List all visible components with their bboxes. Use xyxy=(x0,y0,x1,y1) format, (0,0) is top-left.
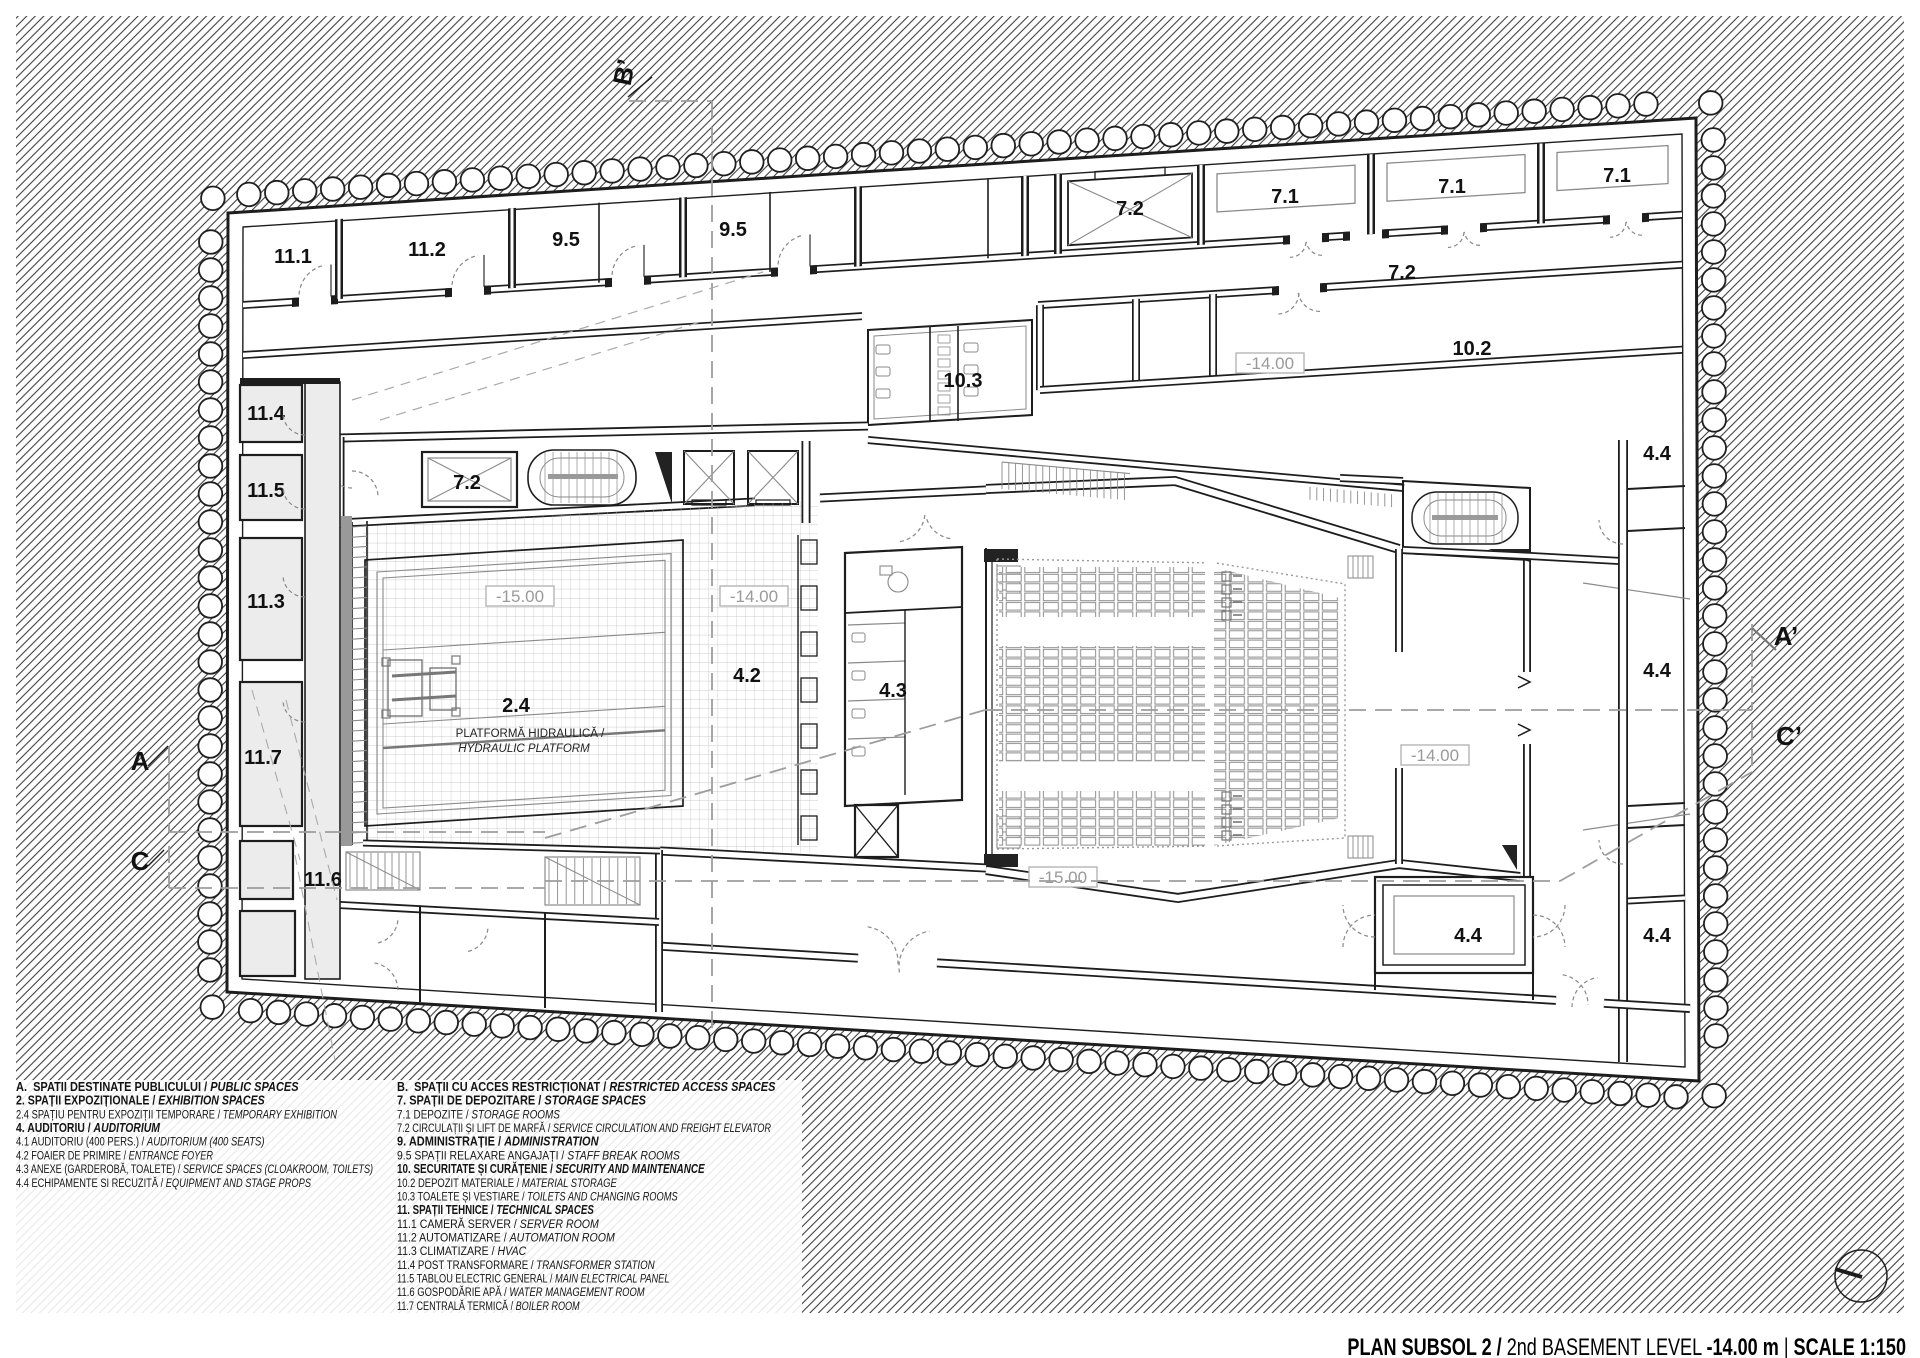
svg-text:C’: C’ xyxy=(1776,721,1802,751)
svg-text:4.2: 4.2 xyxy=(733,665,761,687)
svg-text:4.2 FOAIER DE PRIMIRE / ENTRAN: 4.2 FOAIER DE PRIMIRE / ENTRANCE FOYER xyxy=(16,1149,213,1162)
svg-text:7.2 CIRCULAȚII ȘI LIFT DE MARF: 7.2 CIRCULAȚII ȘI LIFT DE MARFĂ / SERVIC… xyxy=(397,1121,771,1136)
svg-text:7.1 DEPOZITE / STORAGE ROOMS: 7.1 DEPOZITE / STORAGE ROOMS xyxy=(397,1109,560,1122)
svg-text:4.3: 4.3 xyxy=(879,680,907,702)
svg-text:10.2 DEPOZIT MATERIALE / MATER: 10.2 DEPOZIT MATERIALE / MATERIAL STORAG… xyxy=(397,1177,617,1190)
svg-text:4.4 ECHIPAMENTE SI RECUZITĂ /: 4.4 ECHIPAMENTE SI RECUZITĂ / EQUIPMENT … xyxy=(16,1176,312,1191)
svg-text:11.3: 11.3 xyxy=(247,591,285,613)
svg-text:11.6 GOSPODĂRIE APĂ / WATER MA: 11.6 GOSPODĂRIE APĂ / WATER MANAGEMENT R… xyxy=(397,1285,645,1299)
svg-text:9.5: 9.5 xyxy=(552,229,580,251)
svg-text:2.4: 2.4 xyxy=(502,695,531,717)
svg-text:4.4: 4.4 xyxy=(1643,660,1672,682)
svg-text:-14.00: -14.00 xyxy=(1246,354,1294,373)
svg-text:11.2: 11.2 xyxy=(408,239,446,261)
svg-text:10. SECURITATE ȘI CURĂȚENIE /: 10. SECURITATE ȘI CURĂȚENIE / SECURITY A… xyxy=(397,1162,705,1176)
svg-text:PLAN SUBSOL 2 / 2nd BASEMENT L: PLAN SUBSOL 2 / 2nd BASEMENT LEVEL -14.0… xyxy=(1347,1334,1906,1358)
svg-text:9. ADMINISTRAȚIE / ADMINISTRAT: 9. ADMINISTRAȚIE / ADMINISTRATION xyxy=(397,1135,599,1149)
svg-text:7. SPAȚII DE DEPOZITARE / STOR: 7. SPAȚII DE DEPOZITARE / STORAGE SPACES xyxy=(397,1094,646,1108)
svg-text:4.4: 4.4 xyxy=(1643,443,1672,465)
svg-text:11.2 AUTOMATIZARE / AUTOMATION: 11.2 AUTOMATIZARE / AUTOMATION ROOM xyxy=(397,1232,615,1245)
svg-text:7.2: 7.2 xyxy=(453,472,481,494)
svg-text:7.1: 7.1 xyxy=(1603,165,1631,187)
svg-text:PLATFORMĂ HIDRAULICĂ /: PLATFORMĂ HIDRAULICĂ / xyxy=(456,727,605,740)
svg-text:11.4 POST TRANSFORMARE / TRANS: 11.4 POST TRANSFORMARE / TRANSFORMER STA… xyxy=(397,1259,655,1272)
svg-text:-15.00: -15.00 xyxy=(1039,868,1087,887)
svg-text:9.5: 9.5 xyxy=(719,219,747,241)
svg-text:10.3 TOALETE ȘI VESTIARE / TOI: 10.3 TOALETE ȘI VESTIARE / TOILETS AND C… xyxy=(397,1190,678,1203)
svg-text:A. SPATII DESTINATE PUBLICULU: A. SPATII DESTINATE PUBLICULUI / PUBLIC … xyxy=(16,1080,299,1094)
svg-text:A’: A’ xyxy=(1774,621,1799,651)
svg-text:4.4: 4.4 xyxy=(1454,925,1483,947)
svg-text:11.5 TABLOU ELECTRIC GENERAL /: 11.5 TABLOU ELECTRIC GENERAL / MAIN ELEC… xyxy=(397,1272,670,1285)
svg-text:A: A xyxy=(131,746,150,776)
svg-text:11.7: 11.7 xyxy=(244,747,282,769)
svg-text:-14.00: -14.00 xyxy=(730,587,778,606)
svg-text:7.2: 7.2 xyxy=(1388,262,1416,284)
svg-text:HYDRAULIC PLATFORM: HYDRAULIC PLATFORM xyxy=(458,743,590,755)
svg-text:4. AUDITORIU / AUDITORIUM: 4. AUDITORIU / AUDITORIUM xyxy=(16,1122,160,1135)
svg-text:11.1: 11.1 xyxy=(274,246,312,268)
svg-text:11.1 CAMERĂ SERVER / SERVER RO: 11.1 CAMERĂ SERVER / SERVER ROOM xyxy=(397,1217,599,1231)
svg-text:B. SPAȚII CU ACCES RESTRICȚIO: B. SPAȚII CU ACCES RESTRICȚIONAT / RESTR… xyxy=(397,1080,776,1094)
svg-text:10.2: 10.2 xyxy=(1453,338,1492,360)
svg-text:11.5: 11.5 xyxy=(247,480,285,502)
svg-text:-14.00: -14.00 xyxy=(1411,746,1459,765)
svg-text:4.4: 4.4 xyxy=(1643,925,1672,947)
svg-text:C: C xyxy=(131,846,150,876)
svg-text:7.2: 7.2 xyxy=(1116,198,1144,220)
svg-text:11. SPAȚII TEHNICE / TECHNICAL: 11. SPAȚII TEHNICE / TECHNICAL SPACES xyxy=(397,1204,594,1217)
svg-text:11.7 CENTRALĂ TERMICĂ / BOILER: 11.7 CENTRALĂ TERMICĂ / BOILER ROOM xyxy=(397,1299,580,1314)
svg-text:10.3: 10.3 xyxy=(944,370,983,392)
svg-text:2.4 SPAȚIU PENTRU EXPOZIȚII TE: 2.4 SPAȚIU PENTRU EXPOZIȚII TEMPORARE / … xyxy=(16,1108,337,1121)
svg-text:9.5 SPAȚII RELAXARE ANGAJAȚI /: 9.5 SPAȚII RELAXARE ANGAJAȚI / STAFF BRE… xyxy=(397,1150,680,1163)
svg-text:4.3 ANEXE (GARDEROBĂ, TOALETE): 4.3 ANEXE (GARDEROBĂ, TOALETE) / SERVICE… xyxy=(16,1162,373,1177)
svg-text:7.1: 7.1 xyxy=(1438,176,1466,198)
svg-text:7.1: 7.1 xyxy=(1271,186,1299,208)
svg-text:11.4: 11.4 xyxy=(247,403,286,425)
svg-text:-15.00: -15.00 xyxy=(496,587,544,606)
svg-text:2. SPAȚII EXPOZIȚIONALE / EXHI: 2. SPAȚII EXPOZIȚIONALE / EXHIBITION SPA… xyxy=(16,1095,265,1108)
svg-text:11.3 CLIMATIZARE / HVAC: 11.3 CLIMATIZARE / HVAC xyxy=(397,1246,527,1259)
svg-text:4.1 AUDITORIU (400 PERS.) / AU: 4.1 AUDITORIU (400 PERS.) / AUDITORIUM (… xyxy=(16,1136,264,1149)
